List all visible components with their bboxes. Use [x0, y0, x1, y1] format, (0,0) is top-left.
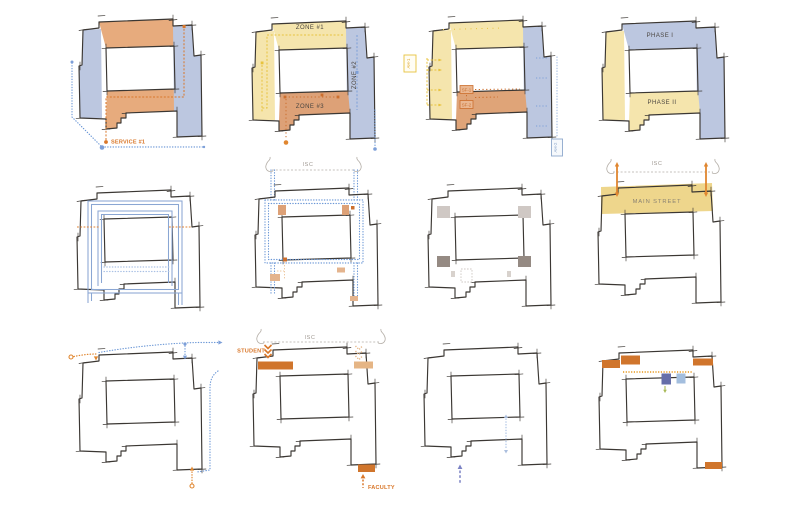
isc-label: ISC	[304, 335, 315, 341]
panel-entry-paths	[69, 340, 223, 488]
entry-block-bottomright	[705, 462, 722, 469]
panel-service-zoning: SERVICE #1	[71, 15, 207, 150]
blue-route-corner-dot	[100, 145, 105, 150]
panel-entries-student-faculty: ISC STUDENT FACULTY	[237, 329, 395, 491]
panel-main-street: ISC MAIN STREET	[595, 159, 725, 306]
blue-route-top-dot	[71, 61, 74, 64]
panel-entry-program	[596, 346, 726, 471]
isc-squiggle-right	[378, 329, 385, 343]
secondary-entry-block	[354, 362, 373, 369]
panel-phasing: PHASE I PHASE II	[599, 17, 729, 142]
student-entry-block	[258, 362, 293, 370]
isc-squiggle-right	[712, 159, 719, 173]
orange-exit-arrowhead	[190, 467, 194, 471]
isc-squiggle-left	[257, 329, 264, 343]
isc-label: ISC	[651, 161, 662, 167]
zone3-end-dot	[284, 140, 289, 145]
faculty-entry-block	[358, 465, 375, 473]
diagram-canvas: SERVICE #1 ZONE #1 ZONE #2 ZONE #3	[0, 0, 800, 518]
faculty-arrowhead-up	[361, 474, 366, 478]
sf2-label: SF-2	[462, 103, 472, 108]
floor-plan-diagram-sheet: SERVICE #1 ZONE #1 ZONE #2 ZONE #3	[0, 0, 800, 518]
link-arrowhead-top	[504, 415, 508, 419]
building-outline	[425, 184, 555, 309]
blue-path-right-dotted	[197, 371, 218, 472]
blue-path-arrow-right	[218, 340, 222, 344]
blue-route-end-dot	[203, 146, 205, 148]
orange-exit-circle	[190, 484, 194, 488]
lightblue-block	[677, 374, 686, 384]
zone2-route-dot	[356, 71, 359, 74]
zone3-dot-mid	[321, 94, 324, 97]
panel-core-locations	[425, 184, 555, 309]
zone1-route-dot	[261, 62, 264, 65]
ah2-label: AH-2	[553, 142, 558, 153]
panel-entry-arrows	[421, 343, 551, 484]
student-label: STUDENT	[237, 349, 265, 355]
building-outline	[421, 343, 551, 468]
ah1-fill-top	[449, 20, 524, 49]
isc-drop-dots	[271, 170, 358, 200]
link-arrowhead-bottom	[504, 450, 508, 454]
zone-fill-top	[99, 19, 174, 48]
entry-block-topleft-inner	[621, 356, 640, 365]
orange-entry-arrowhead	[94, 356, 98, 360]
faculty-label: FACULTY	[368, 485, 395, 491]
panel-air-systems: AH-1 SF-1 SF-2 AH-2	[404, 16, 563, 156]
secondary-chevrons-down	[356, 346, 363, 360]
isc-squiggle-left	[266, 157, 273, 171]
isc-label: ISC	[302, 162, 313, 168]
entry-block-topleft-outer	[602, 360, 620, 368]
green-arrowhead-down	[663, 390, 667, 393]
zone3-label: ZONE #3	[296, 104, 324, 110]
blue-path-top-dotted	[99, 343, 219, 353]
service-route-start-dot	[104, 140, 108, 144]
zone1-label: ZONE #1	[296, 25, 324, 31]
purple-block	[662, 374, 672, 385]
service-route-end-dot	[183, 25, 186, 28]
sf1-dash-row	[475, 89, 520, 90]
ah1-label: AH-1	[406, 58, 411, 69]
orange-entry-dotted	[74, 354, 96, 357]
panel-zones: ZONE #1 ZONE #2 ZONE #3	[249, 17, 379, 151]
zone3-dot-right	[337, 96, 340, 99]
student-chevrons-down	[265, 345, 272, 358]
service-label: SERVICE #1	[111, 140, 145, 146]
orange-entry-start-circle	[69, 355, 73, 359]
isc-squiggle-right	[354, 157, 361, 171]
zone3-dot-left	[284, 96, 287, 99]
zone2-route-end-dot	[373, 147, 377, 151]
phase2-label: PHASE II	[648, 100, 677, 106]
isc-squiggle-left	[607, 159, 614, 173]
building-outline	[76, 348, 206, 473]
phase1-label: PHASE I	[647, 33, 674, 39]
entry-block-topright	[693, 359, 713, 366]
panel-corridor-loop	[74, 186, 204, 311]
panel-isc-loop: ISC	[252, 157, 382, 309]
blue-branch-dot	[183, 342, 186, 345]
sf1-label: SF-1	[462, 88, 472, 93]
main-street-label: MAIN STREET	[633, 199, 682, 205]
entry-arrowhead-up	[458, 465, 463, 470]
